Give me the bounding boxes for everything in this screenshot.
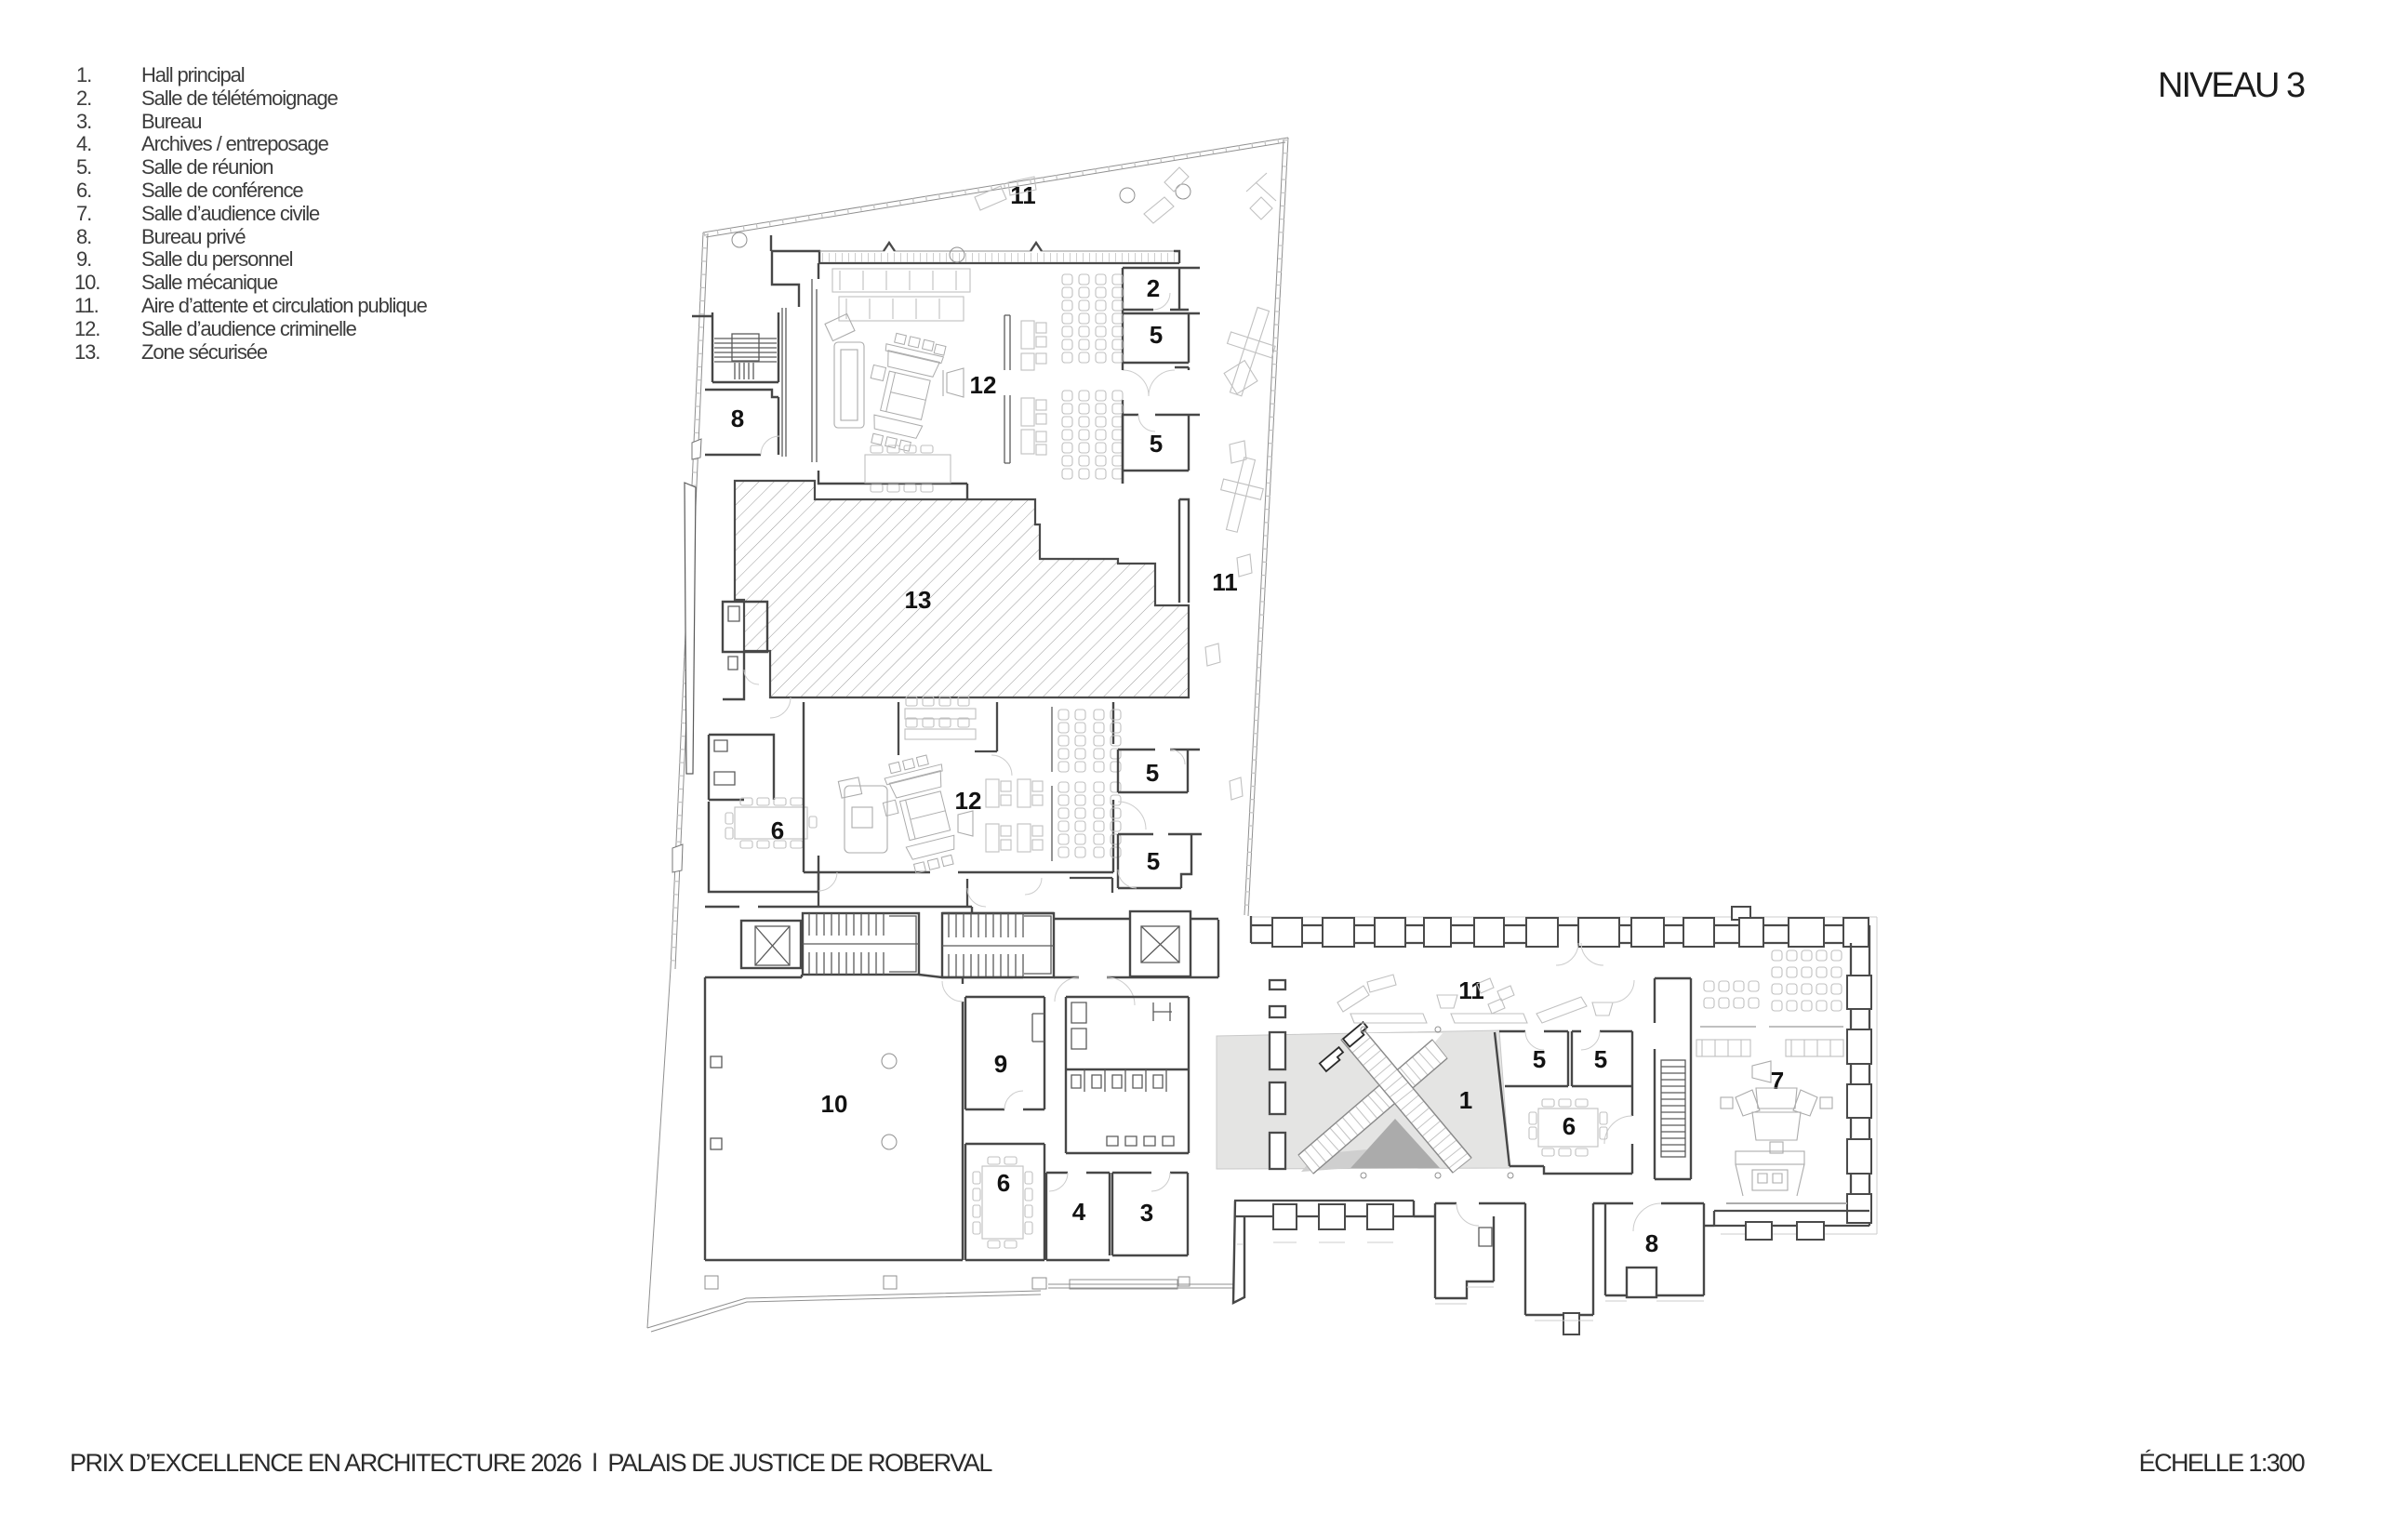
- svg-text:ÉCHELLE 1:300: ÉCHELLE 1:300: [2139, 1449, 2305, 1477]
- svg-text:5: 5: [1594, 1045, 1607, 1073]
- svg-text:11: 11: [1010, 181, 1036, 209]
- svg-text:11.: 11.: [74, 294, 99, 317]
- svg-text:Archives / entreposage: Archives / entreposage: [141, 132, 329, 155]
- svg-text:10.: 10.: [74, 271, 100, 294]
- svg-text:Bureau privé: Bureau privé: [141, 225, 246, 248]
- svg-text:12: 12: [970, 371, 997, 399]
- svg-text:9.: 9.: [76, 247, 91, 271]
- svg-text:Salle d’audience criminelle: Salle d’audience criminelle: [141, 317, 357, 340]
- svg-text:12: 12: [955, 787, 982, 815]
- svg-text:7: 7: [1771, 1067, 1784, 1095]
- svg-text:8: 8: [731, 405, 744, 432]
- svg-text:3: 3: [1140, 1199, 1153, 1227]
- svg-text:6: 6: [1563, 1112, 1576, 1140]
- svg-text:5: 5: [1147, 847, 1160, 875]
- svg-text:1: 1: [1459, 1086, 1472, 1114]
- svg-text:Salle mécanique: Salle mécanique: [141, 271, 278, 294]
- svg-text:4: 4: [1072, 1198, 1086, 1226]
- svg-text:5: 5: [1150, 430, 1163, 458]
- svg-text:Zone sécurisée: Zone sécurisée: [141, 340, 268, 364]
- svg-text:12.: 12.: [74, 317, 100, 340]
- svg-text:13: 13: [905, 586, 932, 614]
- svg-text:11: 11: [1458, 976, 1484, 1004]
- svg-text:9: 9: [994, 1050, 1007, 1078]
- svg-text:1.: 1.: [76, 63, 91, 86]
- svg-text:5: 5: [1533, 1045, 1546, 1073]
- svg-text:3.: 3.: [76, 110, 91, 133]
- svg-text:8.: 8.: [76, 225, 91, 248]
- svg-text:6.: 6.: [76, 179, 91, 202]
- svg-text:8: 8: [1645, 1229, 1658, 1257]
- svg-text:NIVEAU 3: NIVEAU 3: [2158, 66, 2305, 105]
- svg-text:2.: 2.: [76, 86, 91, 110]
- svg-text:Hall principal: Hall principal: [141, 63, 245, 86]
- svg-text:2: 2: [1147, 274, 1160, 302]
- svg-text:7.: 7.: [76, 202, 91, 225]
- svg-text:Salle de réunion: Salle de réunion: [141, 155, 273, 179]
- svg-text:6: 6: [771, 816, 784, 844]
- svg-text:4.: 4.: [76, 132, 91, 155]
- svg-text:13.: 13.: [74, 340, 100, 364]
- svg-text:PRIX D’EXCELLENCE EN ARCHITECT: PRIX D’EXCELLENCE EN ARCHITECTURE 2026 l…: [70, 1449, 992, 1477]
- svg-text:6: 6: [997, 1169, 1010, 1197]
- svg-text:Salle de conférence: Salle de conférence: [141, 179, 303, 202]
- svg-text:11: 11: [1212, 568, 1238, 596]
- svg-text:Aire d’attente et circulation: Aire d’attente et circulation publique: [141, 294, 428, 317]
- svg-text:5: 5: [1146, 759, 1159, 787]
- svg-text:Bureau: Bureau: [141, 110, 201, 133]
- svg-text:5: 5: [1150, 321, 1163, 349]
- svg-text:5.: 5.: [76, 155, 91, 179]
- svg-text:Salle d’audience civile: Salle d’audience civile: [141, 202, 320, 225]
- svg-text:Salle de télétémoignage: Salle de télétémoignage: [141, 86, 339, 110]
- svg-text:Salle du personnel: Salle du personnel: [141, 247, 293, 271]
- svg-text:10: 10: [821, 1090, 848, 1118]
